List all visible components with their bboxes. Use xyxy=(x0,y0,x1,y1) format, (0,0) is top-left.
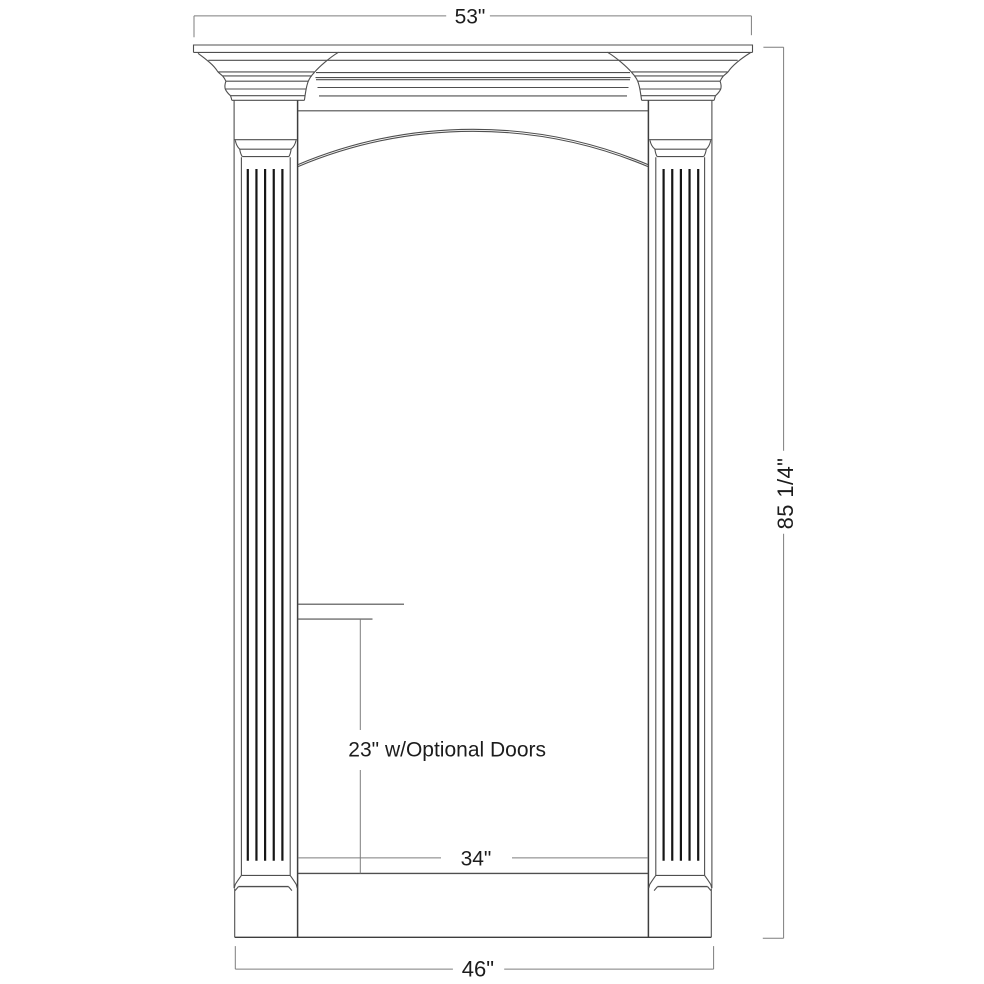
svg-text:53": 53" xyxy=(455,5,486,28)
svg-text:34": 34" xyxy=(461,847,492,870)
svg-text:23" w/Optional Doors: 23" w/Optional Doors xyxy=(348,739,546,762)
svg-text:85 1/4": 85 1/4" xyxy=(773,458,798,530)
svg-text:46": 46" xyxy=(462,957,494,982)
